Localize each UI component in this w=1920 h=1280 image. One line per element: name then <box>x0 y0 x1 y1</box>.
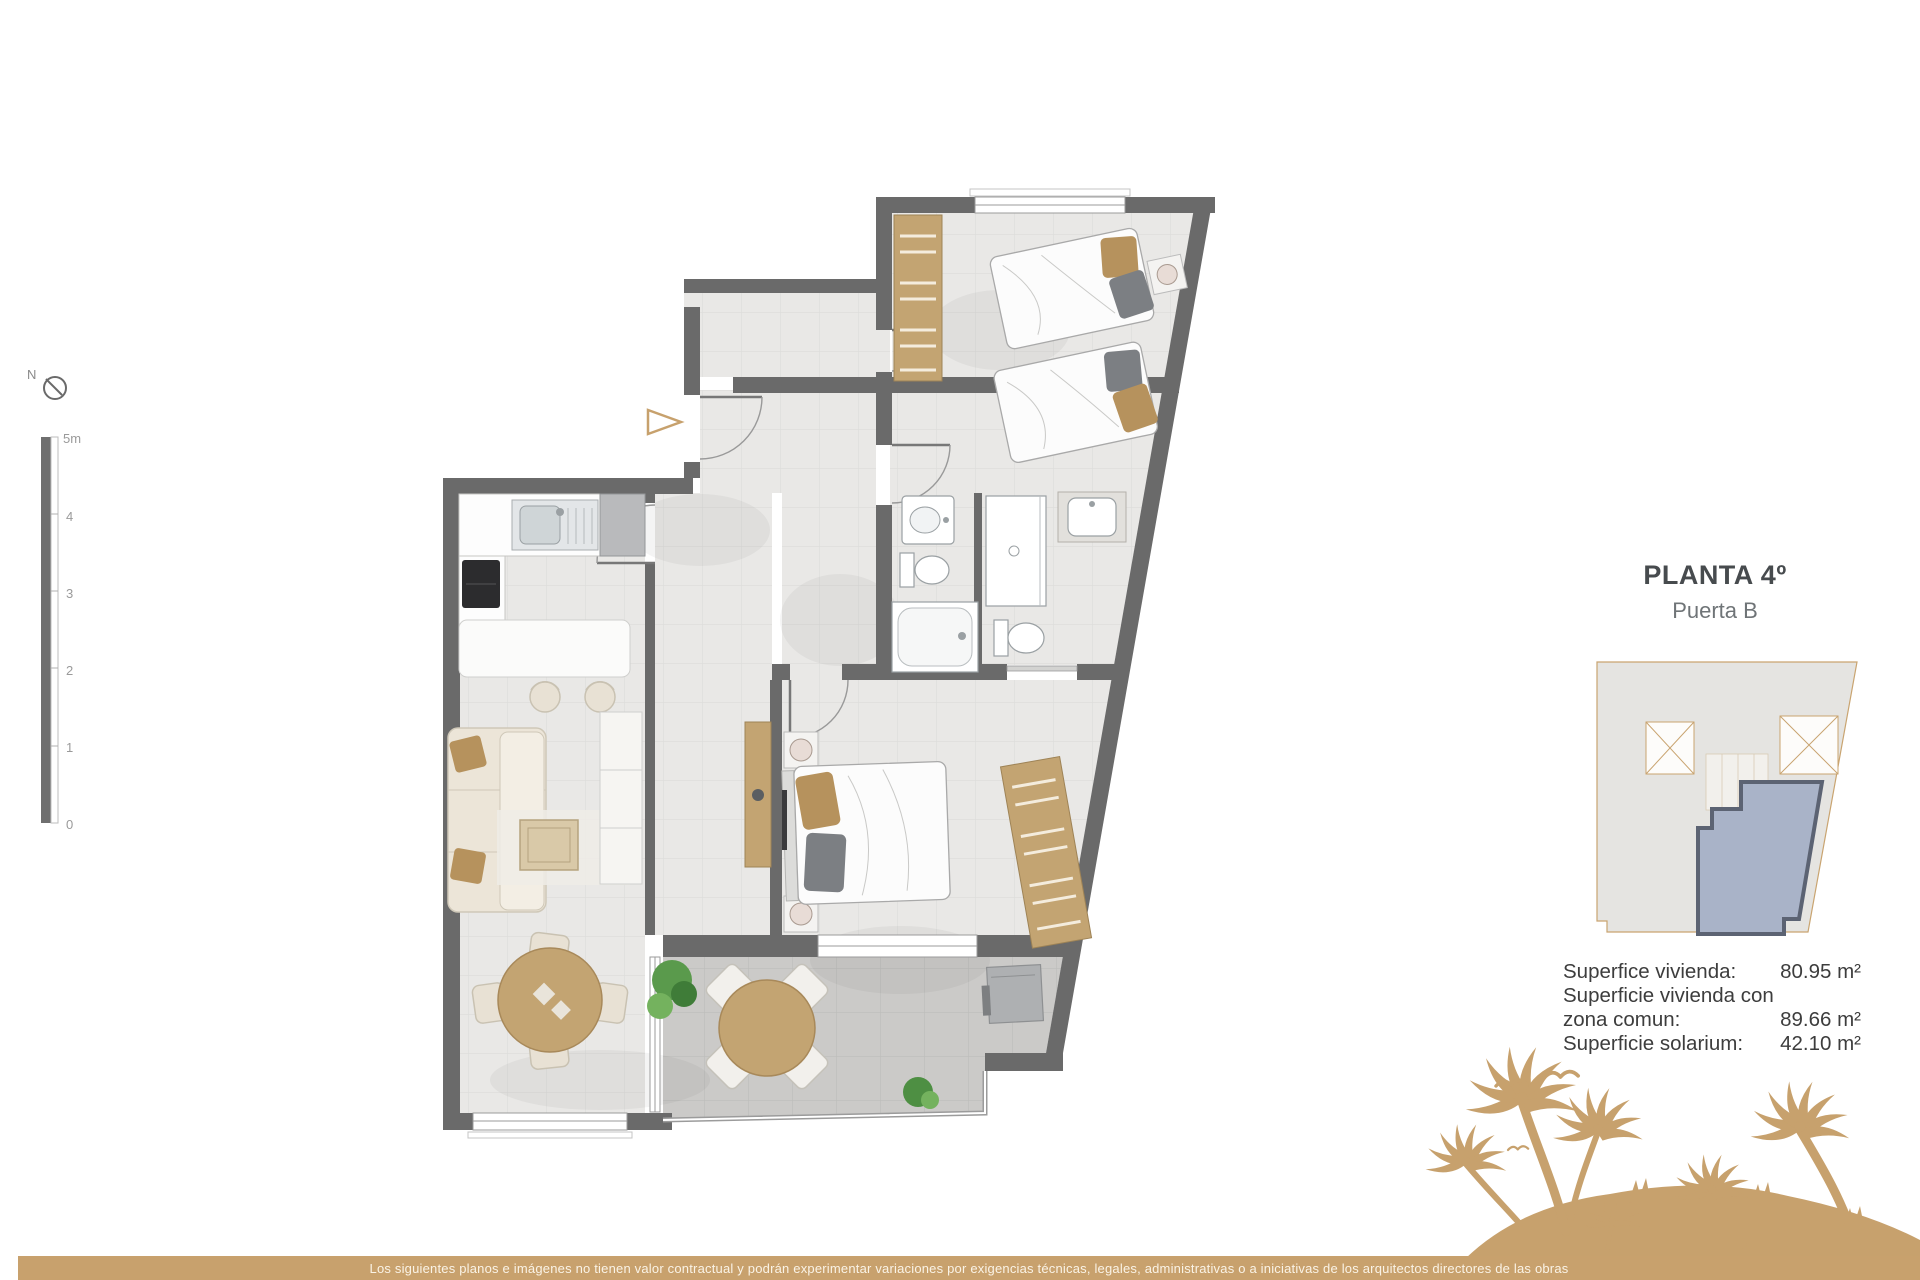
svg-text:0: 0 <box>66 817 73 832</box>
fridge <box>600 494 645 556</box>
page-title: PLANTA 4º <box>1555 560 1875 591</box>
media-sideboard <box>600 712 642 884</box>
bath1-toilet <box>900 553 949 587</box>
surface-label: zona comun: <box>1563 1008 1680 1032</box>
disclaimer-bar: Los siguientes planos e imágenes no tien… <box>18 1256 1920 1280</box>
north-compass-icon: N <box>27 367 66 399</box>
disclaimer-text: Los siguientes planos e imágenes no tien… <box>370 1261 1569 1276</box>
palm-trees-graphic <box>1425 1047 1920 1258</box>
surface-table: Superfice vivienda: 80.95 m² Superficie … <box>1563 960 1861 1056</box>
seagull-icon <box>1508 1146 1528 1150</box>
surface-label: Superficie vivienda con <box>1563 984 1774 1008</box>
page-subtitle: Puerta B <box>1555 598 1875 624</box>
svg-text:1: 1 <box>66 740 73 755</box>
plan-graphics: N 5m 4 3 2 1 0 <box>0 0 1920 1280</box>
floor-plan <box>443 189 1216 1138</box>
double-bed <box>782 761 951 905</box>
svg-text:N: N <box>27 367 36 382</box>
surface-row: Superficie solarium: 42.10 m² <box>1563 1032 1861 1056</box>
surface-label: Superficie solarium: <box>1563 1032 1743 1056</box>
svg-text:5m: 5m <box>63 431 81 446</box>
scale-bar: 5m 4 3 2 1 0 <box>41 431 81 832</box>
hall-console <box>745 722 771 867</box>
surface-value: 80.95 m² <box>1780 960 1861 984</box>
surface-value: 42.10 m² <box>1780 1032 1861 1056</box>
seagull-icon <box>1544 1072 1578 1078</box>
shower <box>986 496 1046 606</box>
svg-text:2: 2 <box>66 663 73 678</box>
surface-value: 89.66 m² <box>1780 1008 1861 1032</box>
entry-arrow-icon <box>648 410 681 434</box>
surface-label: Superfice vivienda: <box>1563 960 1736 984</box>
svg-text:4: 4 <box>66 509 73 524</box>
kitchen-island <box>459 620 630 677</box>
bath2-toilet <box>994 620 1044 656</box>
tv <box>782 790 787 850</box>
surface-row: zona comun: 89.66 m² <box>1563 1008 1861 1032</box>
surface-row: Superfice vivienda: 80.95 m² <box>1563 960 1861 984</box>
key-plan <box>1597 662 1857 934</box>
bathtub <box>892 602 978 672</box>
plan-title-block: PLANTA 4º Puerta B <box>1555 560 1875 624</box>
surface-row: Superficie vivienda con <box>1563 984 1861 1008</box>
terrace-storage-unit <box>981 965 1044 1024</box>
svg-text:3: 3 <box>66 586 73 601</box>
floorplan-page: N 5m 4 3 2 1 0 <box>0 0 1920 1280</box>
